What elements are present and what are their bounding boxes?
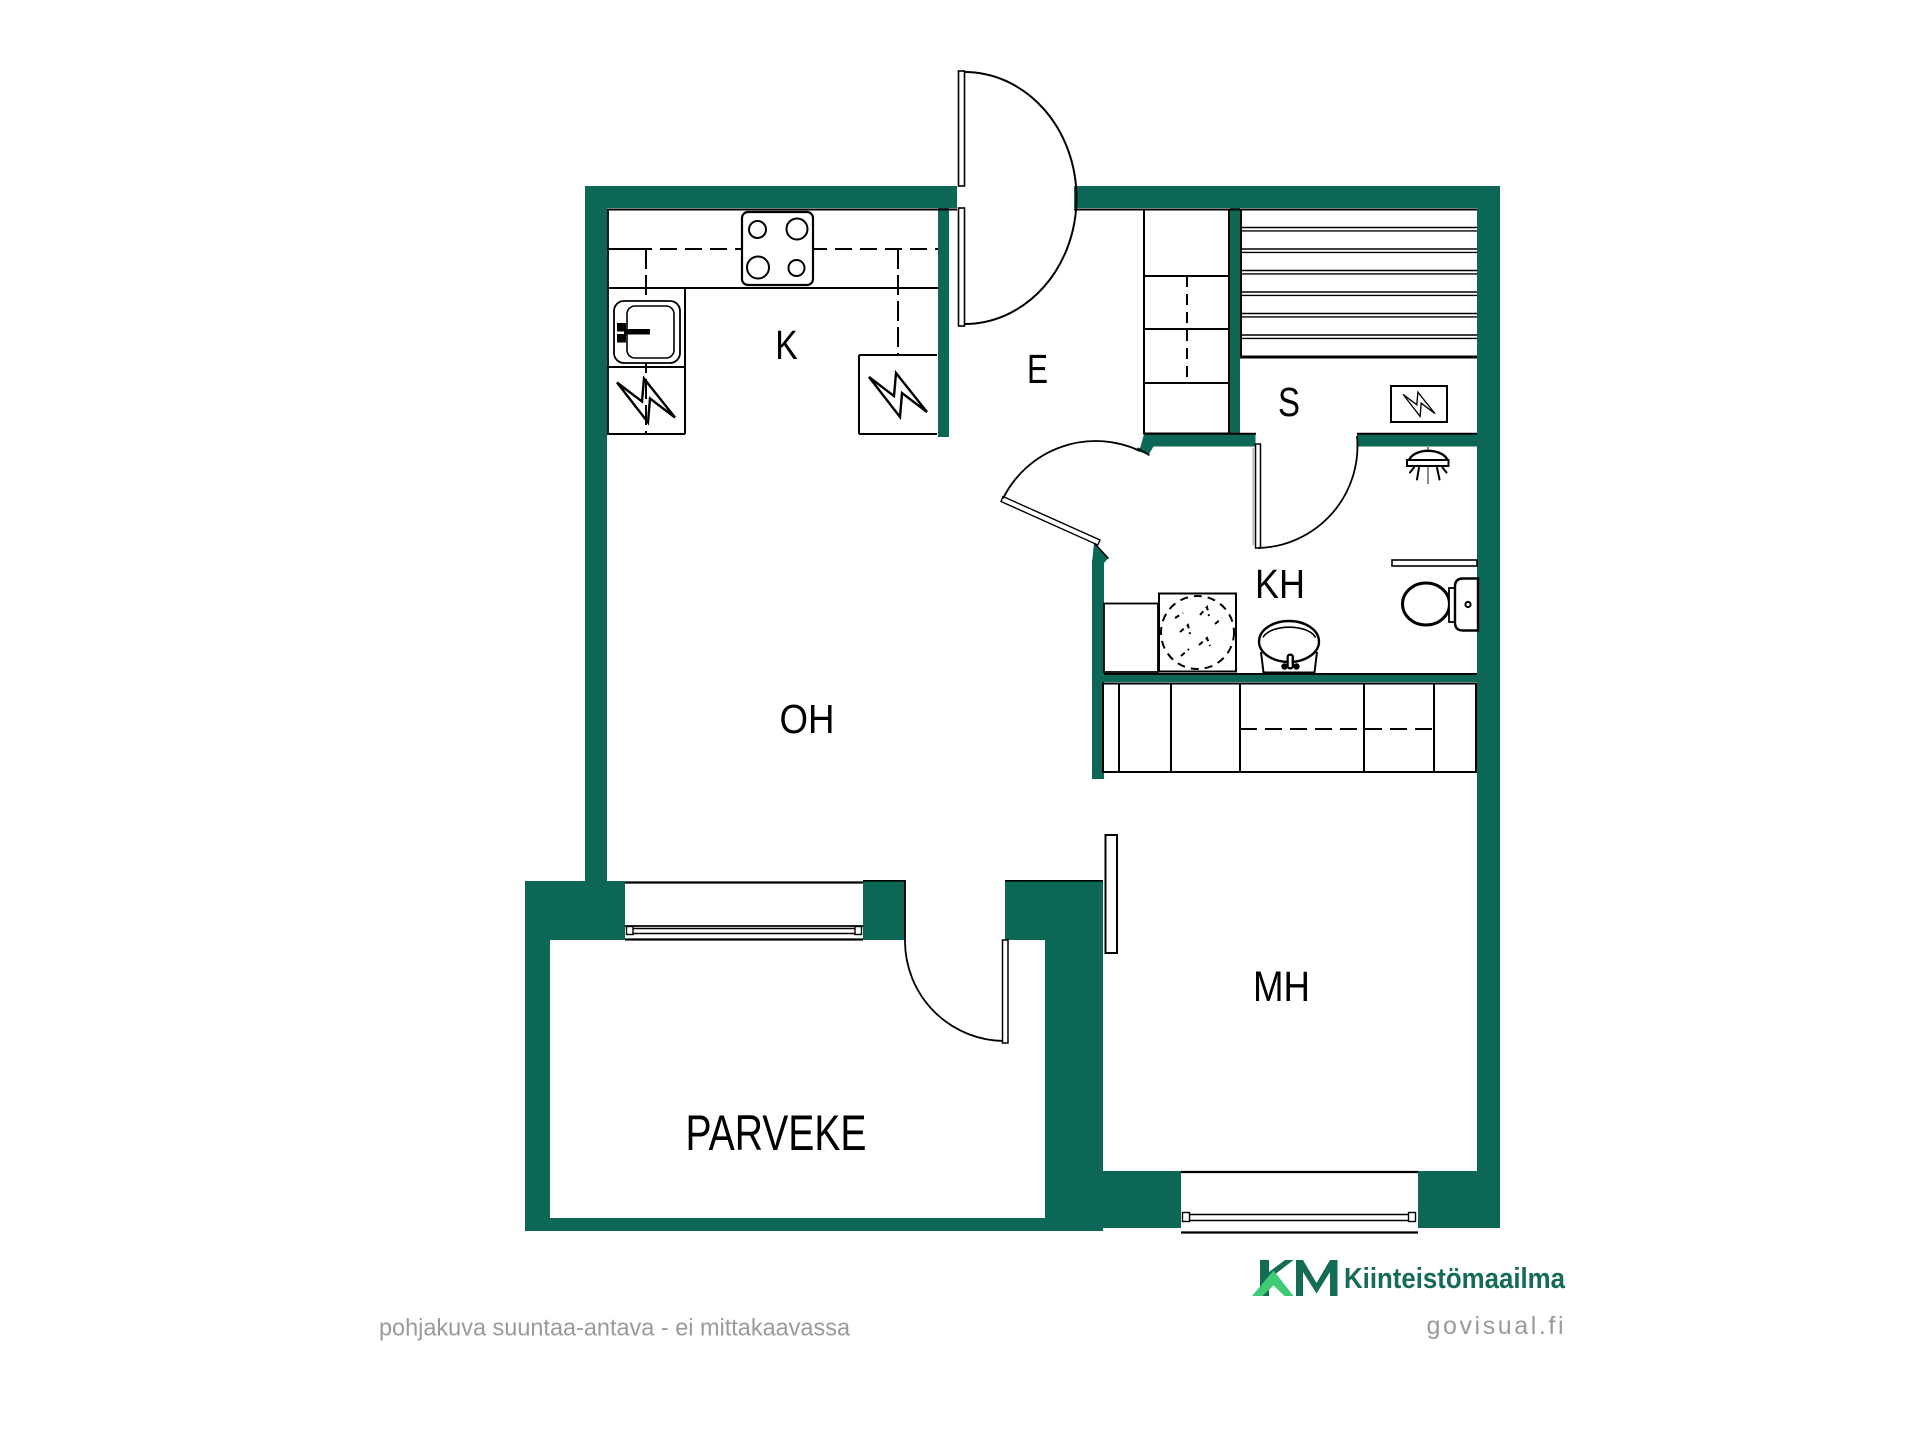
svg-text:Kiinteistömaailma: Kiinteistömaailma [1344,1263,1566,1295]
svg-text:K: K [775,322,798,368]
svg-text:govisual.fi: govisual.fi [1427,1312,1564,1340]
svg-text:KH: KH [1255,561,1305,607]
svg-text:E: E [1027,346,1048,392]
svg-text:MH: MH [1253,963,1310,1011]
svg-text:PARVEKE: PARVEKE [686,1104,867,1161]
svg-text:S: S [1278,379,1300,425]
svg-text:OH: OH [780,696,835,742]
svg-text:pohjakuva suuntaa-antava - ei: pohjakuva suuntaa-antava - ei mittakaava… [379,1315,850,1342]
